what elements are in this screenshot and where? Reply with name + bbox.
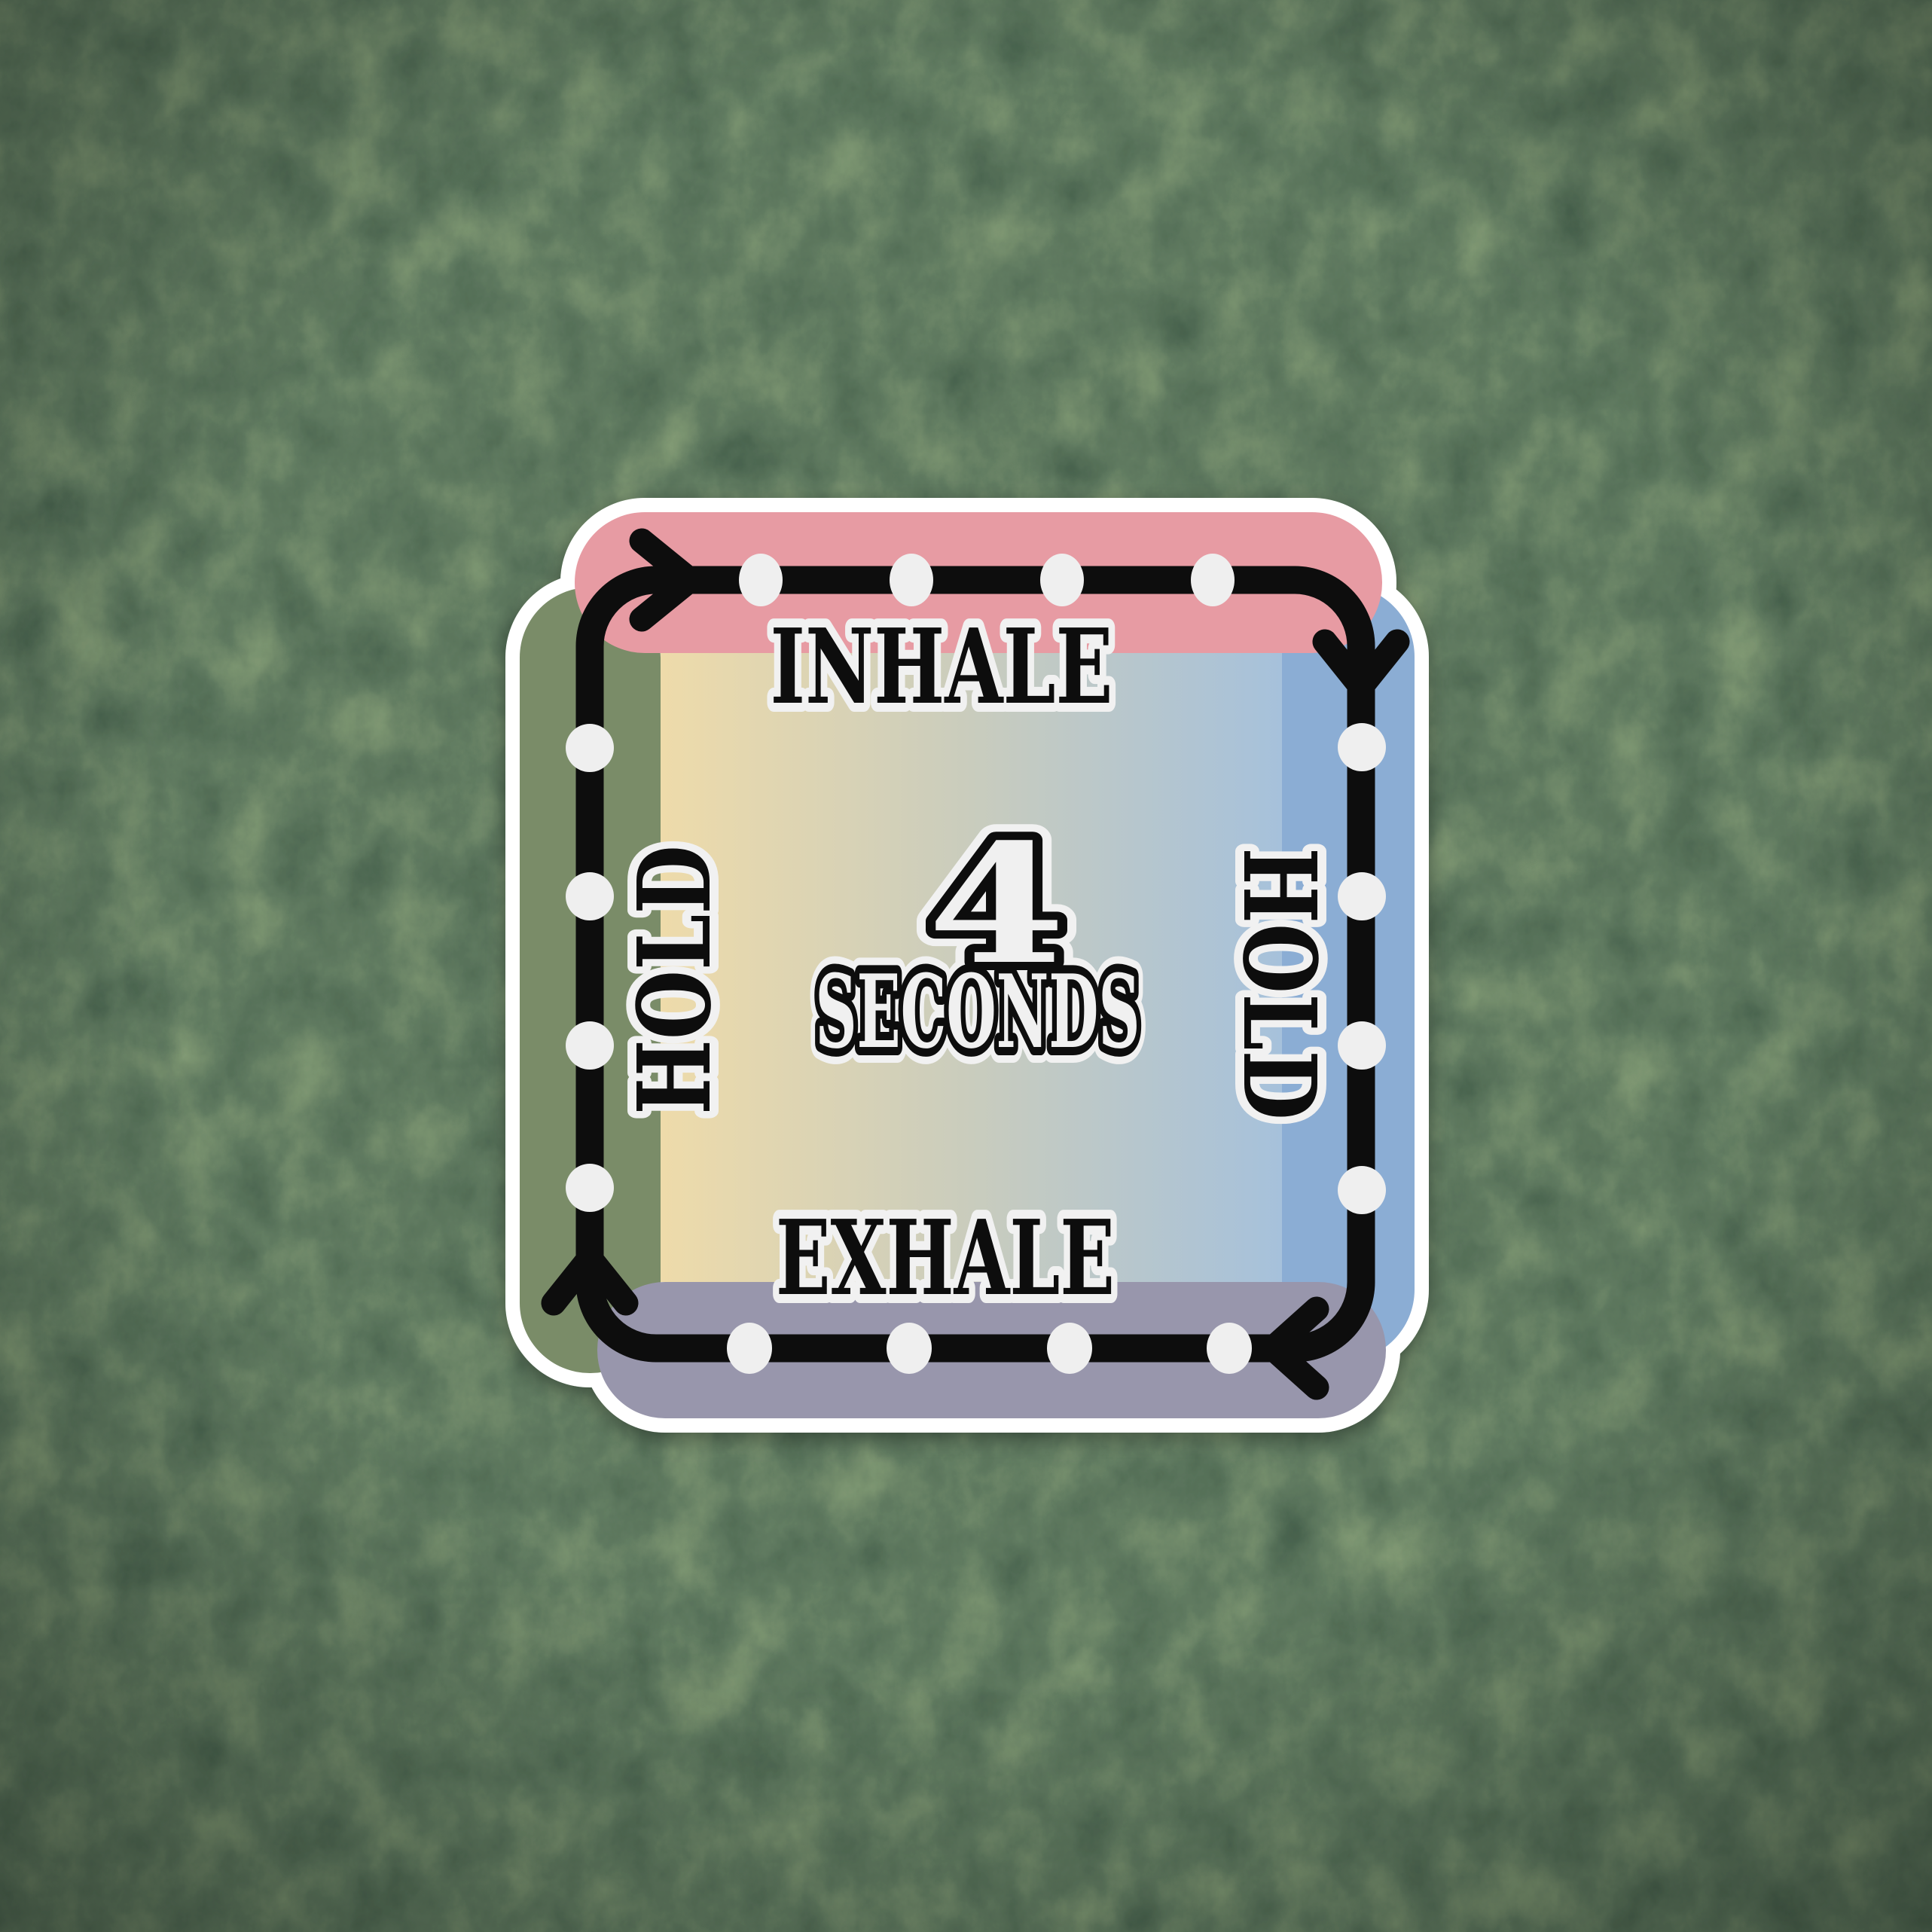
breath-count-dot: [890, 554, 933, 606]
breath-count-dot: [1191, 554, 1235, 606]
exhale-label: EXHALE: [776, 1198, 1115, 1319]
breath-count-dot: [1338, 723, 1386, 771]
breath-count-dot: [566, 1164, 614, 1212]
inhale-label: INHALE: [771, 606, 1113, 728]
breath-count-dot: [1338, 872, 1386, 920]
box-breathing-graphic: INHALE EXHALE HOLD HOLD 4 SECONDS 4 SECO…: [0, 0, 1932, 1932]
breath-count-dot: [1338, 1166, 1386, 1214]
breath-count-dot: [739, 554, 783, 606]
breath-count-dot: [566, 724, 614, 772]
hold-left-label: HOLD: [616, 845, 734, 1115]
breath-count-dot: [887, 1323, 932, 1374]
breath-count-dot: [1040, 554, 1084, 606]
breath-count-dot: [1047, 1323, 1092, 1374]
breath-count-dot: [727, 1323, 772, 1374]
hold-right-label: HOLD: [1220, 847, 1338, 1120]
breath-count-dot: [1338, 1021, 1386, 1070]
breath-count-dot: [566, 872, 614, 920]
breath-count-dot: [1207, 1323, 1252, 1374]
seconds-unit: SECONDS: [816, 952, 1140, 1071]
breath-count-dot: [566, 1021, 614, 1070]
sticker-group: INHALE EXHALE HOLD HOLD 4 SECONDS 4 SECO…: [520, 512, 1415, 1418]
breathing-sticker-scene: INHALE EXHALE HOLD HOLD 4 SECONDS 4 SECO…: [0, 0, 1932, 1932]
